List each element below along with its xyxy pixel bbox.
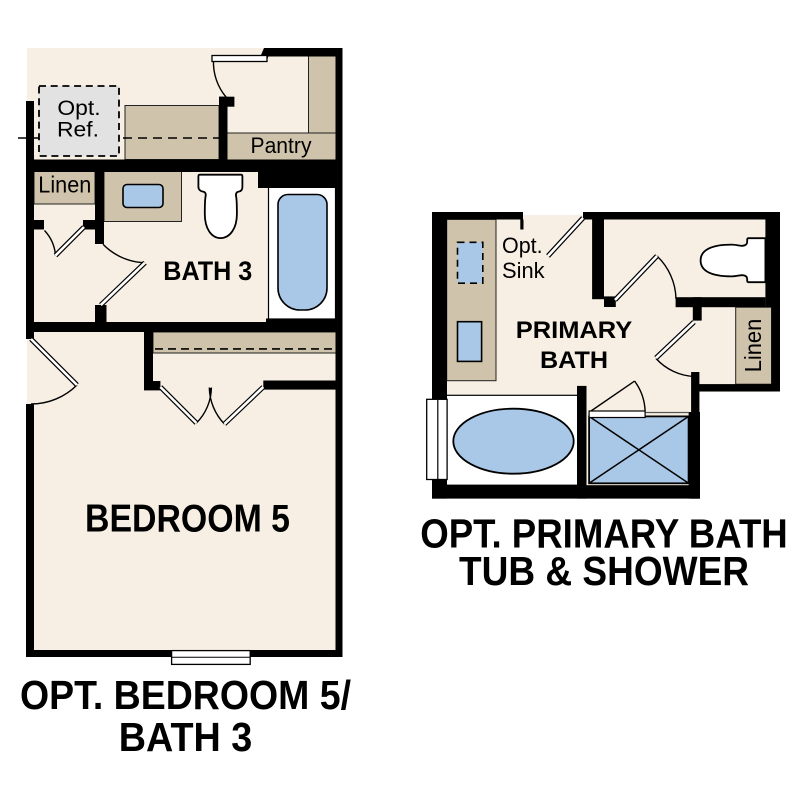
svg-text:Pantry: Pantry [251, 133, 312, 158]
svg-text:BATH 3: BATH 3 [119, 714, 253, 760]
svg-text:Linen: Linen [740, 319, 766, 373]
svg-text:BEDROOM 5: BEDROOM 5 [85, 498, 290, 541]
svg-text:Sink: Sink [502, 258, 545, 283]
svg-text:BATH: BATH [540, 347, 608, 374]
svg-text:Opt.: Opt. [57, 96, 100, 120]
svg-text:PRIMARY: PRIMARY [516, 317, 633, 344]
svg-text:BATH 3: BATH 3 [163, 256, 252, 286]
svg-text:Linen: Linen [38, 172, 91, 198]
svg-text:Opt.: Opt. [502, 233, 543, 258]
svg-text:OPT. BEDROOM 5/: OPT. BEDROOM 5/ [20, 672, 351, 718]
svg-text:Ref.: Ref. [57, 118, 99, 142]
svg-text:TUB & SHOWER: TUB & SHOWER [459, 548, 749, 594]
